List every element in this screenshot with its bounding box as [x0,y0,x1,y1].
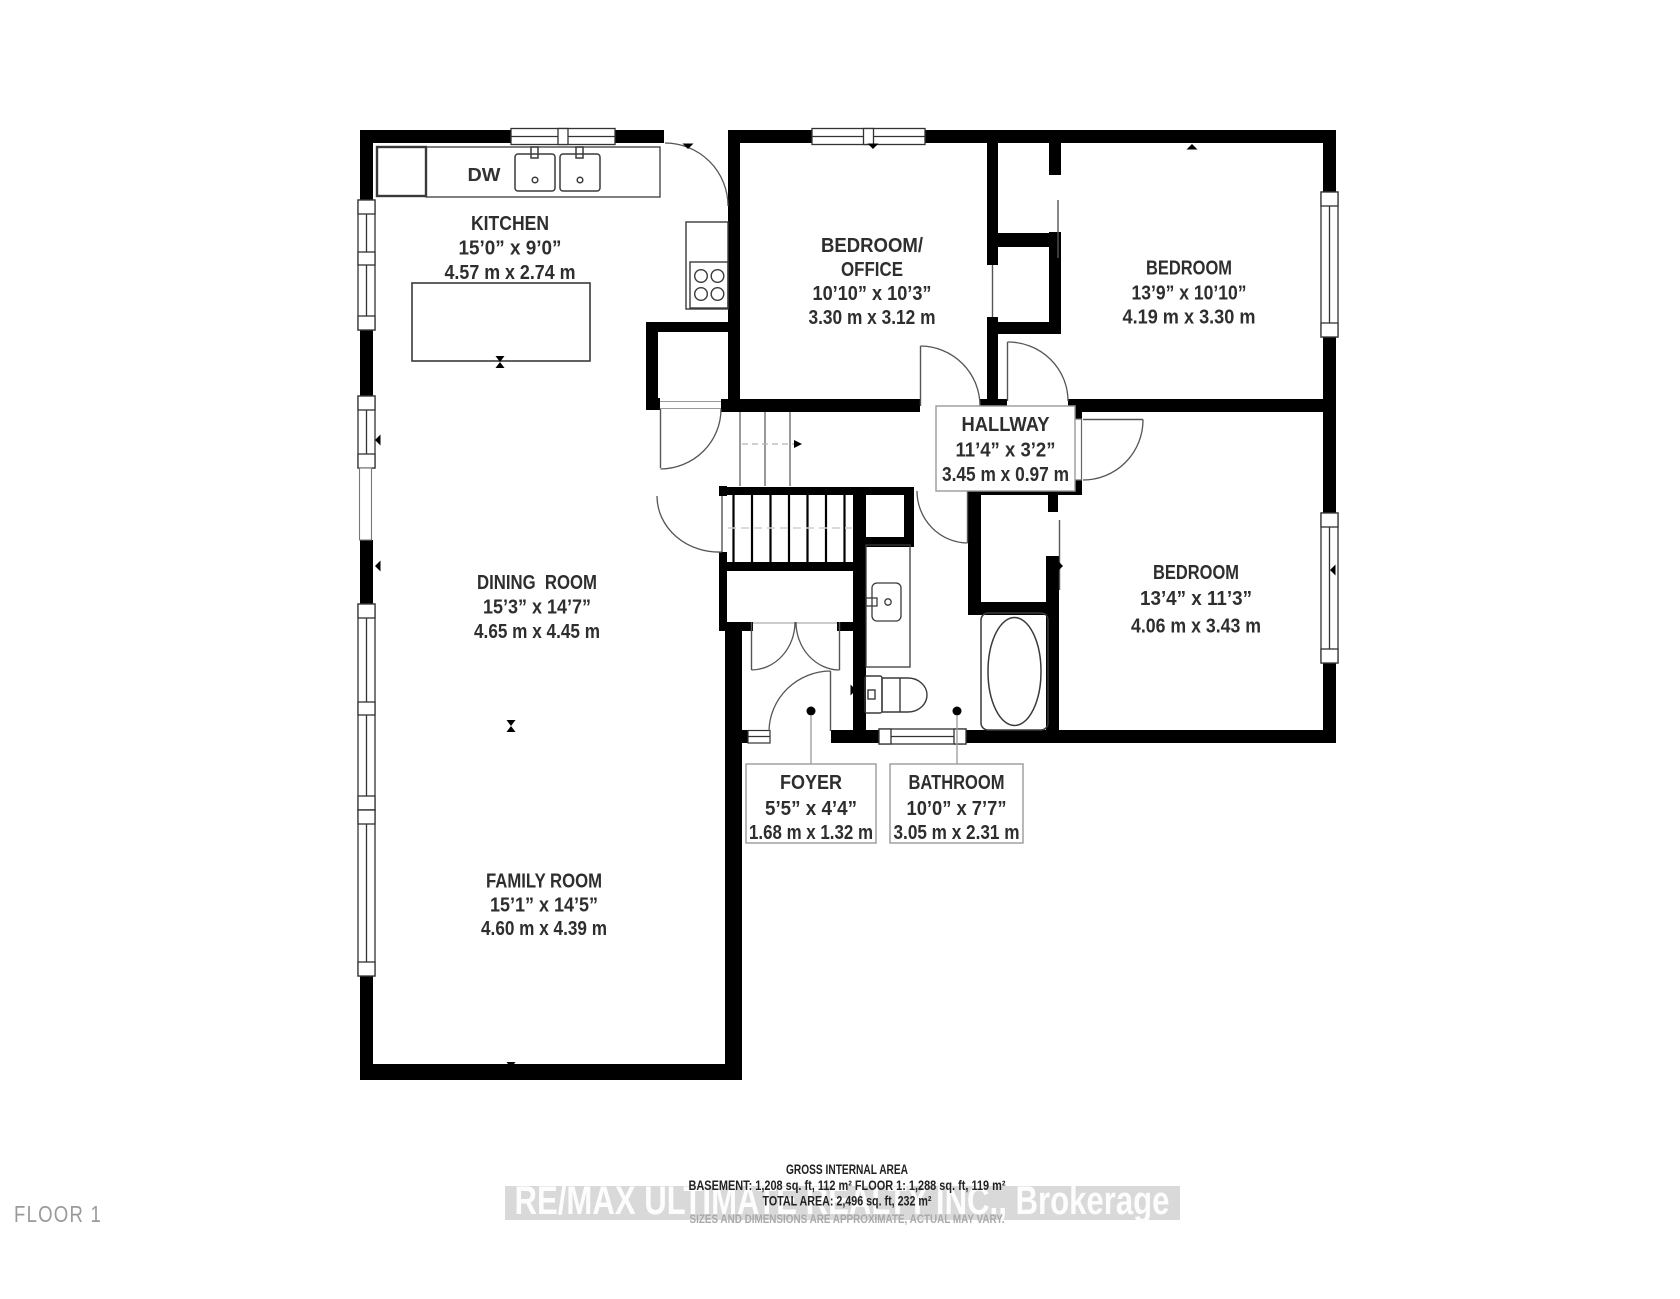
svg-text:FAMILY ROOM: FAMILY ROOM [486,871,602,893]
svg-text:DINING ROOM: DINING ROOM [477,572,597,594]
svg-text:BEDROOM/: BEDROOM/ [821,235,923,257]
svg-text:11’4” x 3’2”: 11’4” x 3’2” [956,440,1056,462]
svg-text:1.68 m x 1.32 m: 1.68 m x 1.32 m [749,822,873,844]
svg-text:BASEMENT: 1,208 sq. ft, 112 m²: BASEMENT: 1,208 sq. ft, 112 m² FLOOR 1: … [689,1178,1006,1193]
svg-text:13’9” x 10’10”: 13’9” x 10’10” [1132,283,1247,305]
svg-text:BATHROOM: BATHROOM [909,772,1005,794]
svg-text:4.06 m x 3.43 m: 4.06 m x 3.43 m [1131,616,1261,638]
svg-text:4.19 m x 3.30 m: 4.19 m x 3.30 m [1123,307,1256,329]
svg-text:4.60 m x 4.39 m: 4.60 m x 4.39 m [481,918,607,940]
svg-text:TOTAL AREA: 2,496 sq. ft, 232: TOTAL AREA: 2,496 sq. ft, 232 m² [763,1194,932,1209]
svg-text:BEDROOM: BEDROOM [1153,562,1239,584]
svg-text:FLOOR 1: FLOOR 1 [14,1201,102,1227]
svg-text:GROSS INTERNAL AREA: GROSS INTERNAL AREA [786,1162,908,1177]
svg-text:5’5” x 4’4”: 5’5” x 4’4” [765,798,857,820]
svg-text:FOYER: FOYER [780,772,842,794]
svg-text:15’1” x 14’5”: 15’1” x 14’5” [490,895,598,917]
svg-text:DW: DW [468,165,501,185]
svg-text:BEDROOM: BEDROOM [1146,258,1232,280]
svg-text:OFFICE: OFFICE [841,259,903,281]
svg-text:10’0” x 7’7”: 10’0” x 7’7” [907,798,1007,820]
svg-text:4.57 m x 2.74 m: 4.57 m x 2.74 m [445,262,576,284]
svg-text:HALLWAY: HALLWAY [962,414,1051,436]
svg-text:10’10” x 10’3”: 10’10” x 10’3” [813,283,932,305]
svg-text:3.45 m x 0.97 m: 3.45 m x 0.97 m [942,464,1069,486]
svg-text:15’0” x 9’0”: 15’0” x 9’0” [459,238,562,260]
svg-text:3.05 m x 2.31 m: 3.05 m x 2.31 m [894,822,1020,844]
svg-text:KITCHEN: KITCHEN [471,213,549,235]
svg-text:4.65 m x 4.45 m: 4.65 m x 4.45 m [474,621,600,643]
svg-text:3.30 m x 3.12 m: 3.30 m x 3.12 m [809,307,936,329]
svg-text:15’3” x 14’7”: 15’3” x 14’7” [483,597,591,619]
svg-text:13’4” x 11’3”: 13’4” x 11’3” [1140,588,1252,610]
svg-text:SIZES AND DIMENSIONS ARE APPRO: SIZES AND DIMENSIONS ARE APPROXIMATE, AC… [690,1214,1005,1226]
